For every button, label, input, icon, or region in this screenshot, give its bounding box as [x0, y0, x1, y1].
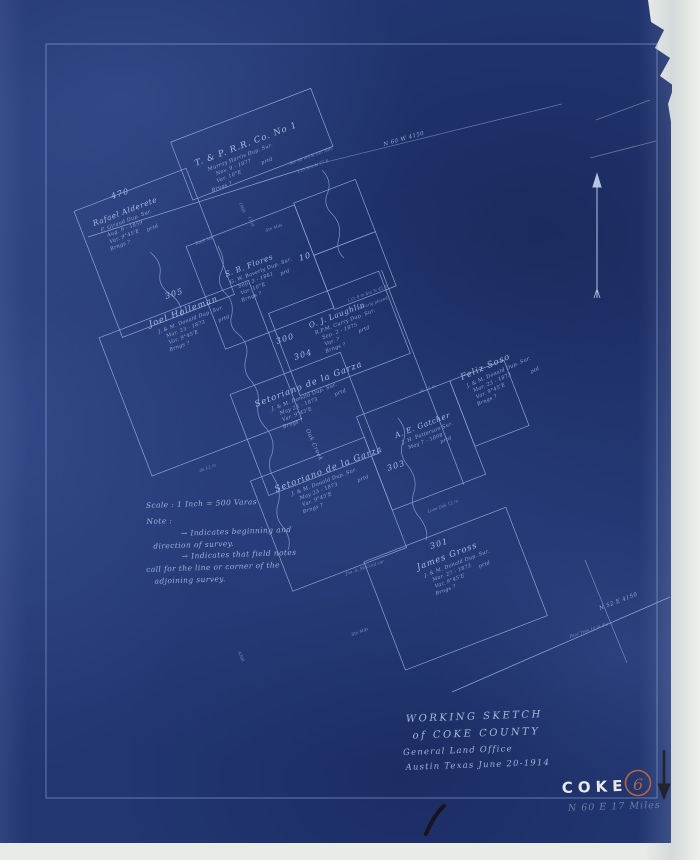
- svg-text:→ Indicates that field notes: → Indicates that field notes: [182, 548, 297, 561]
- creek-lines: [150, 170, 427, 550]
- svg-text:1900: 1900: [238, 202, 247, 214]
- svg-text:prtd: prtd: [358, 325, 371, 335]
- svg-text:prtd: prtd: [334, 388, 347, 398]
- survey-label-gross: James Gross J. & M. Donald Dup. Sur. Mar…: [414, 537, 499, 601]
- svg-text:prd: prd: [280, 268, 291, 277]
- svg-text:prtd: prtd: [260, 156, 273, 166]
- survey-label-alderete: Rafael Alderete F. Giraud Dup. Sur. Aug.…: [91, 195, 169, 255]
- svg-text:ptd: ptd: [530, 366, 541, 375]
- svg-text:prtd: prtd: [478, 560, 491, 570]
- svg-text:Stn Mds: Stn Mds: [265, 222, 283, 233]
- svg-text:of COKE COUNTY: of COKE COUNTY: [412, 726, 540, 741]
- svg-text:Stn Mds: Stn Mds: [351, 626, 369, 637]
- down-arrow-mark: [658, 750, 670, 799]
- svg-text:direction of survey.: direction of survey.: [153, 539, 234, 551]
- svg-text:304: 304: [293, 348, 314, 362]
- survey-label-soso: Feliz Soso J. & M. Donald Dup. Sur. Mar.…: [458, 343, 544, 410]
- survey-label-holleman: Joel Holleman J. & M. Donald Dup. Sur. M…: [146, 293, 235, 358]
- svg-text:470: 470: [109, 187, 131, 202]
- map-overlay: T. & P. R.R. Co. No 1 Murray Harris Dup.…: [0, 0, 700, 860]
- svg-text:do 12 in: do 12 in: [419, 383, 437, 394]
- svg-text:prtd: prtd: [356, 474, 369, 484]
- sheet-number: 6: [633, 775, 643, 794]
- svg-text:N 52 E 4150: N 52 E 4150: [598, 592, 639, 613]
- survey-label-tprr: T. & P. R.R. Co. No 1 Murray Harris Dup.…: [193, 120, 309, 195]
- survey-label-flores: S. B. Flores G. W. Baverly Dup. Sur. Sep…: [223, 246, 300, 306]
- ink-slash-mark: [426, 806, 444, 834]
- svg-text:General Land Office: General Land Office: [403, 744, 513, 758]
- svg-text:305: 305: [164, 287, 185, 301]
- boundary-lines: [88, 104, 670, 692]
- survey-label-garza-upper: Setoriano de la Garza J. & M. Donald Dup…: [253, 359, 374, 437]
- north-arrow: [593, 174, 601, 298]
- svg-text:Pear Tree 10 in dia: Pear Tree 10 in dia: [568, 621, 609, 639]
- svg-text:4300: 4300: [237, 650, 246, 663]
- scale-note-block: Scale : 1 Inch = 500 Varas Note : → Indi…: [144, 496, 298, 586]
- fold-crease-lines: [590, 100, 656, 158]
- svg-text:do 12 in: do 12 in: [199, 462, 217, 473]
- svg-text:→ Indicates beginning and: → Indicates beginning and: [181, 525, 292, 538]
- title-block: WORKING SKETCH of COKE COUNTY General La…: [402, 709, 551, 773]
- sheet-border-line: [46, 44, 657, 798]
- county-chalk-label: COKE: [562, 777, 628, 797]
- survey-label-laughlin: O. J. Laughlin R.P.M. Curry Dup. Sur. Se…: [307, 297, 383, 357]
- svg-text:10: 10: [298, 250, 313, 262]
- sheet-number-circle: 6: [626, 771, 651, 796]
- svg-text:prtd: prtd: [217, 314, 230, 324]
- survey-label-garza-lower: Setoriano de la Garza J. & M. Donald Dup…: [273, 444, 394, 522]
- svg-text:Scale : 1 Inch = 500 Varas: Scale : 1 Inch = 500 Varas: [146, 497, 257, 510]
- svg-text:WORKING SKETCH: WORKING SKETCH: [406, 709, 543, 725]
- field-note-fragments: N 60 W 4150 N 52 E 4150 Oak Creek 1900 1…: [194, 131, 639, 663]
- svg-text:prtd: prtd: [146, 223, 159, 233]
- svg-text:Austin Texas June 20-1914: Austin Texas June 20-1914: [404, 758, 550, 773]
- svg-text:Note :: Note :: [145, 516, 172, 526]
- svg-text:call for the line or corner of: call for the line or corner of the: [146, 560, 280, 574]
- svg-text:303: 303: [386, 459, 407, 473]
- scanned-blueprint-page: T. & P. R.R. Co. No 1 Murray Harris Dup.…: [0, 0, 700, 860]
- svg-text:adjoining survey.: adjoining survey.: [154, 574, 225, 585]
- svg-text:300: 300: [275, 332, 296, 346]
- svg-text:Lone Oak 12 in: Lone Oak 12 in: [426, 498, 459, 514]
- svg-text:1139: 1139: [247, 216, 256, 228]
- svg-text:301: 301: [429, 537, 450, 551]
- survey-label-gatcher: A. E. Gatcher J. H. Patterson Sur. May 7…: [393, 410, 460, 459]
- miles-pencil-note: N 60 E 17 Miles: [567, 800, 661, 814]
- svg-text:Rock Md: Rock Md: [194, 235, 215, 247]
